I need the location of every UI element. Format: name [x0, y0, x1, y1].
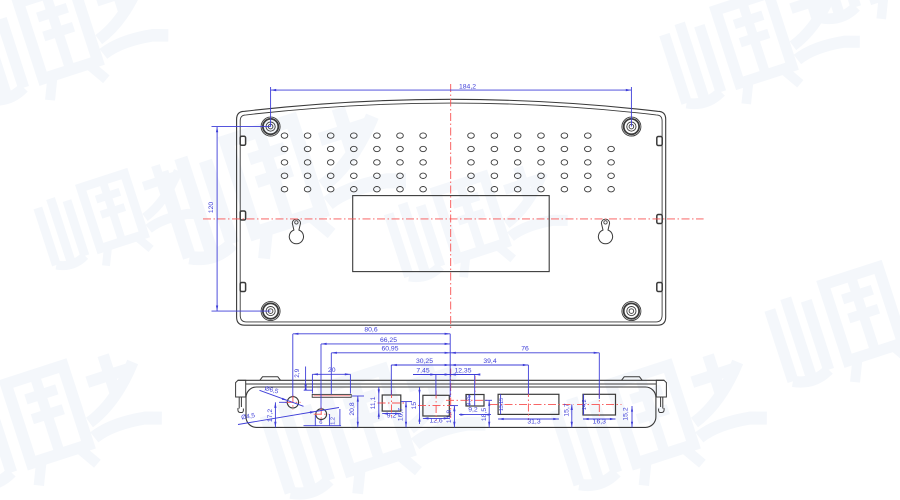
svg-text:66,25: 66,25: [380, 337, 397, 344]
svg-text:15,2: 15,2: [623, 407, 630, 420]
svg-text:39,4: 39,4: [483, 358, 496, 365]
svg-text:80,6: 80,6: [364, 327, 377, 334]
svg-text:16,3: 16,3: [593, 419, 606, 426]
svg-text:15,7: 15,7: [563, 403, 570, 416]
svg-text:7,45: 7,45: [416, 367, 429, 374]
svg-text:9,2: 9,2: [468, 407, 478, 414]
svg-text:60,95: 60,95: [381, 346, 398, 353]
svg-text:2,9: 2,9: [294, 368, 301, 377]
svg-text:76: 76: [521, 346, 529, 353]
svg-text:1,2: 1,2: [330, 417, 336, 425]
svg-text:11,1: 11,1: [370, 396, 377, 409]
svg-text:31,3: 31,3: [527, 419, 540, 426]
svg-text:184,2: 184,2: [459, 83, 476, 90]
svg-text:9,2: 9,2: [387, 413, 397, 420]
svg-text:Ø4,5: Ø4,5: [241, 412, 256, 421]
svg-text:12,35: 12,35: [454, 367, 471, 374]
svg-text:15: 15: [411, 402, 418, 410]
svg-text:16,7: 16,7: [397, 408, 404, 421]
svg-text:14,2: 14,2: [582, 399, 588, 410]
svg-text:20,8: 20,8: [349, 402, 356, 415]
svg-text:14,8: 14,8: [446, 410, 453, 423]
svg-text:18,5: 18,5: [481, 408, 488, 421]
svg-text:6: 6: [319, 420, 322, 426]
svg-text:12,6: 12,6: [429, 417, 442, 424]
svg-text:17,2: 17,2: [267, 409, 274, 422]
svg-text:13,15: 13,15: [499, 398, 505, 411]
svg-text:30,25: 30,25: [416, 358, 433, 365]
svg-text:20: 20: [328, 367, 336, 374]
svg-text:120: 120: [208, 202, 215, 214]
